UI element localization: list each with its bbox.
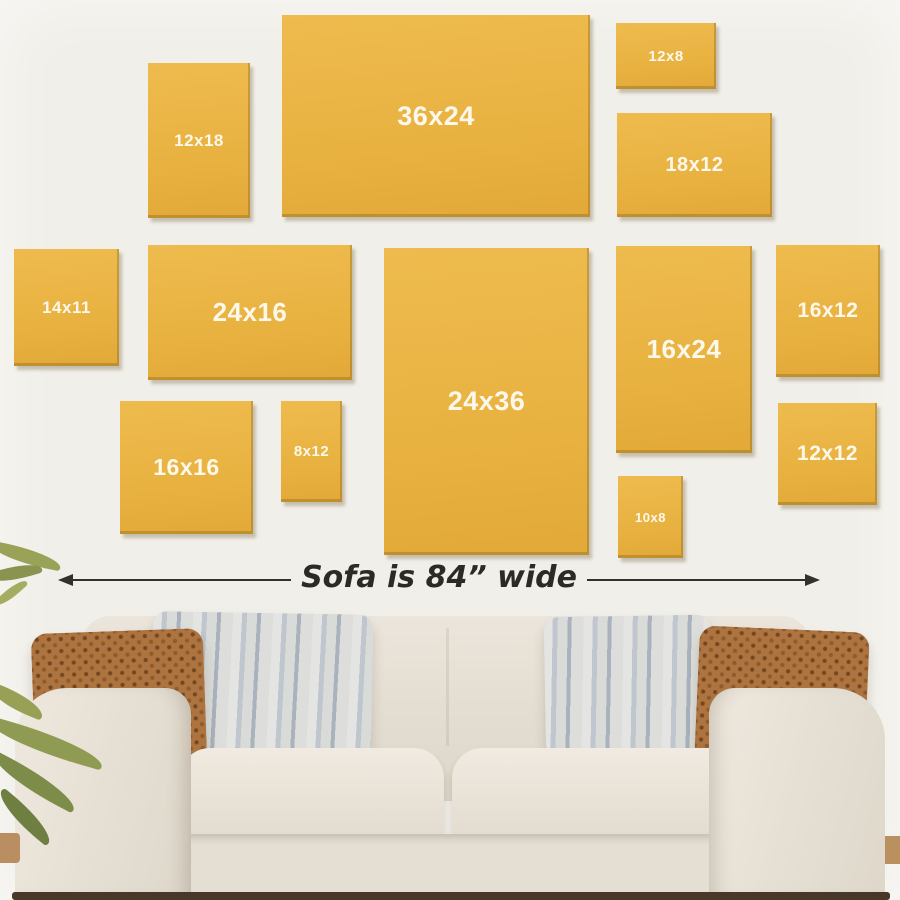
sofa-arm-right: [709, 688, 885, 896]
sofa-width-label: Sofa is 84” wide: [291, 560, 587, 601]
plant-leaf: [0, 751, 81, 814]
canvas-size-label: 36x24: [397, 101, 475, 132]
sofa-width-annotation: Sofa is 84” wide: [58, 556, 820, 604]
canvas-size-label: 16x12: [798, 299, 859, 323]
sofa-wooden-leg: [884, 836, 900, 864]
canvas-14x11: 14x11: [14, 249, 119, 366]
arrow-right-head-icon: [805, 574, 820, 586]
canvas-size-label: 24x16: [213, 297, 288, 328]
sofa-back-split: [446, 628, 449, 746]
canvas-size-label: 12x12: [797, 442, 858, 466]
canvas-16x24: 16x24: [616, 246, 752, 453]
canvas-16x12: 16x12: [776, 245, 880, 377]
canvas-size-label: 8x12: [294, 443, 329, 460]
plant-leaf: [0, 559, 43, 587]
canvas-12x18: 12x18: [148, 63, 250, 218]
arrow-right-line: [587, 579, 805, 582]
canvas-size-label: 18x12: [665, 154, 723, 177]
canvas-36x24: 36x24: [282, 15, 590, 217]
canvas-12x8: 12x8: [616, 23, 716, 89]
canvas-size-label: 12x8: [648, 48, 683, 65]
plant-leaf: [0, 716, 107, 771]
sofa-base: [55, 834, 845, 894]
canvas-size-label: 10x8: [635, 510, 666, 525]
canvas-10x8: 10x8: [618, 476, 683, 558]
canvas-16x16: 16x16: [120, 401, 253, 534]
plant-leaf: [0, 541, 63, 572]
canvas-18x12: 18x12: [617, 113, 772, 217]
canvas-24x36: 24x36: [384, 248, 589, 555]
canvas-12x12: 12x12: [778, 403, 877, 505]
sofa-back-cushion: [82, 616, 810, 801]
arrow-left-head-icon: [58, 574, 73, 586]
plant-leaf: [0, 577, 28, 610]
canvas-size-label: 14x11: [42, 298, 91, 318]
canvas-size-label: 24x36: [448, 386, 526, 417]
canvas-size-label: 12x18: [174, 131, 224, 151]
plant-pot: [0, 833, 20, 863]
plant-leaf: [0, 788, 58, 847]
canvas-size-label: 16x16: [153, 454, 219, 481]
pillow-striped-left: [151, 611, 373, 757]
floor-shadow: [12, 892, 890, 900]
pillow-brown-right: [694, 625, 870, 768]
sofa-arm-left: [15, 688, 191, 896]
plant-leaf: [0, 681, 47, 720]
sofa-seat-cushion-right: [452, 748, 830, 842]
pillow-striped-right: [544, 615, 712, 758]
sofa-seat-cushion-left: [180, 748, 444, 842]
canvas-size-label: 16x24: [647, 334, 722, 365]
arrow-left-line: [73, 579, 291, 582]
pillow-brown-left: [31, 628, 208, 769]
size-guide-image: 12x1836x2412x818x1214x1124x1624x3616x241…: [0, 0, 900, 900]
canvas-24x16: 24x16: [148, 245, 352, 380]
canvas-8x12: 8x12: [281, 401, 342, 502]
